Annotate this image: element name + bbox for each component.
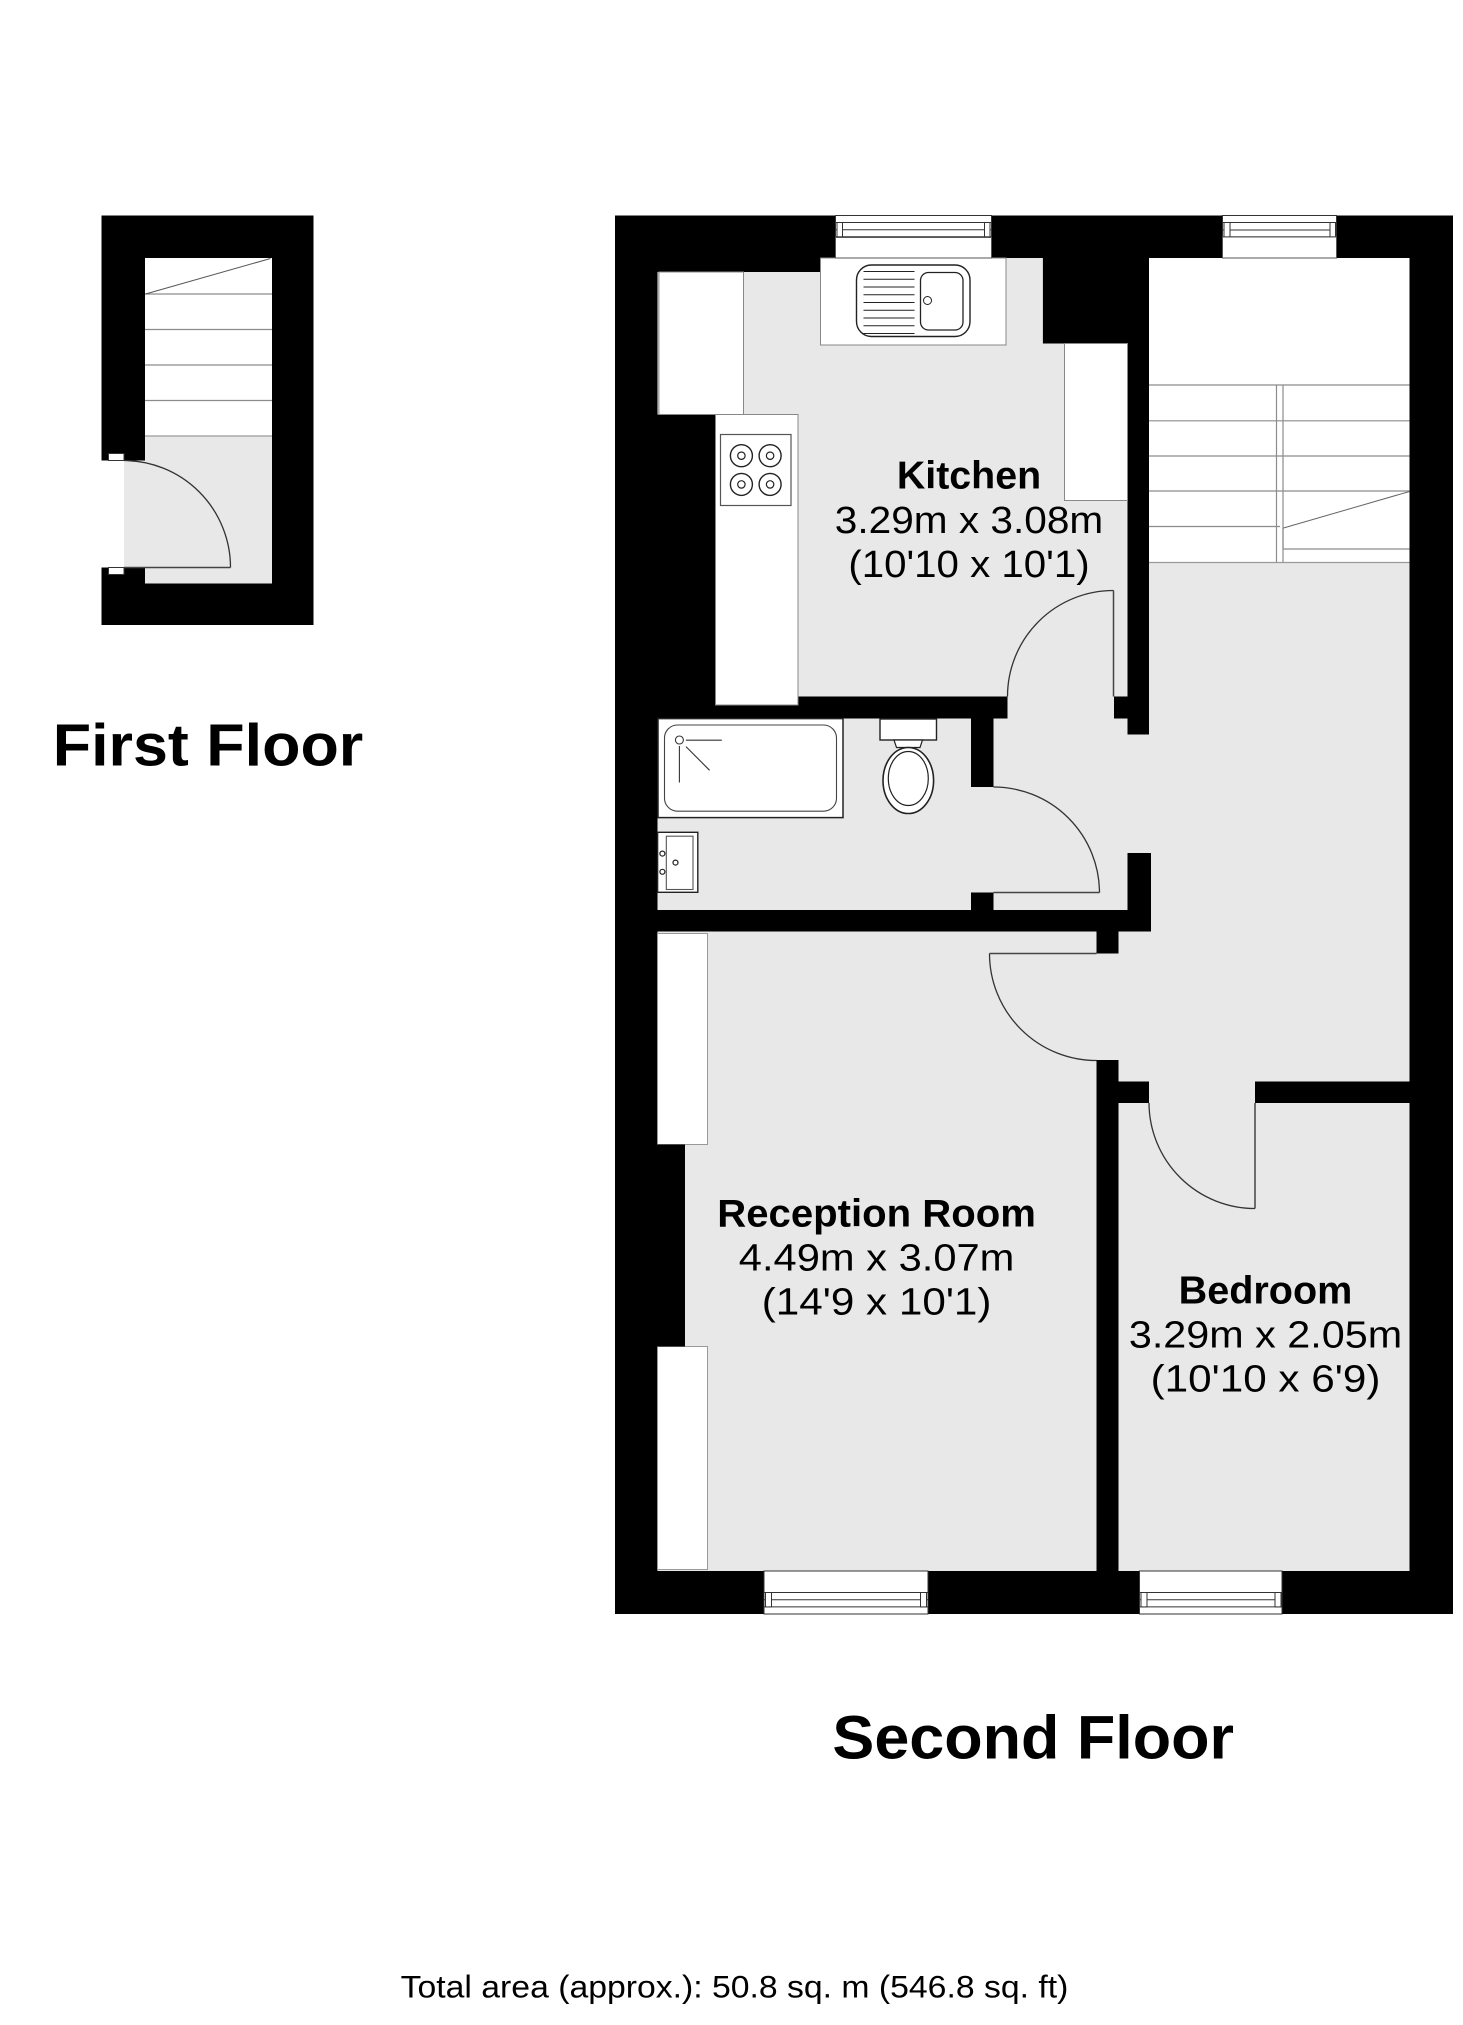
svg-text:First Floor: First Floor: [53, 712, 364, 778]
svg-text:3.29m x 3.08m: 3.29m x 3.08m: [835, 500, 1103, 542]
svg-text:3.29m x 2.05m: 3.29m x 2.05m: [1129, 1315, 1402, 1357]
svg-text:(14'9 x 10'1): (14'9 x 10'1): [762, 1282, 992, 1324]
svg-text:Reception Room: Reception Room: [717, 1193, 1036, 1236]
svg-text:4.49m x 3.07m: 4.49m x 3.07m: [739, 1238, 1015, 1280]
svg-text:Second Floor: Second Floor: [832, 1704, 1234, 1772]
svg-text:Total area (approx.): 50.8 sq.: Total area (approx.): 50.8 sq. m (546.8 …: [401, 1968, 1069, 2004]
svg-text:(10'10 x 10'1): (10'10 x 10'1): [848, 544, 1089, 586]
svg-text:Bedroom: Bedroom: [1179, 1270, 1353, 1313]
svg-text:Kitchen: Kitchen: [897, 455, 1041, 498]
svg-text:(10'10 x 6'9): (10'10 x 6'9): [1151, 1359, 1381, 1401]
